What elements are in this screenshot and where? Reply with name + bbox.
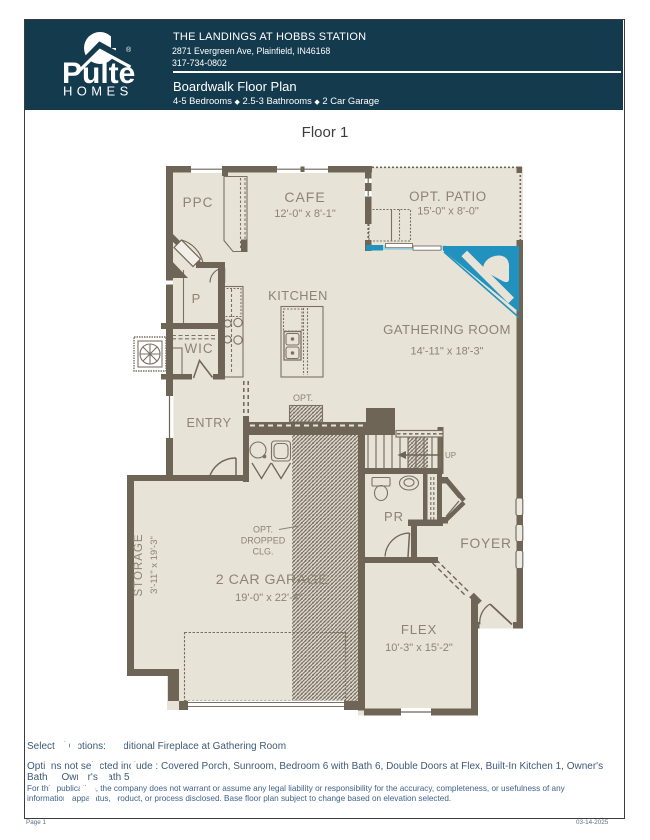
svg-text:KITCHEN: KITCHEN xyxy=(268,288,328,303)
svg-text:14'-11" x 18'-3": 14'-11" x 18'-3" xyxy=(411,346,484,358)
svg-text:2 CAR GARAGE: 2 CAR GARAGE xyxy=(216,572,328,588)
svg-text:OPT.: OPT. xyxy=(293,393,313,403)
svg-text:19'-0" x 22'-4": 19'-0" x 22'-4" xyxy=(235,592,303,604)
svg-text:CLG.: CLG. xyxy=(252,547,273,557)
svg-text:12'-0" x 8'-1": 12'-0" x 8'-1" xyxy=(274,208,336,220)
svg-text:OPT.: OPT. xyxy=(253,525,273,535)
svg-text:WIC: WIC xyxy=(184,341,213,356)
svg-text:10'-3" x 15'-2": 10'-3" x 15'-2" xyxy=(385,642,453,654)
svg-text:OPT. PATIO: OPT. PATIO xyxy=(409,189,487,204)
svg-text:15'-0" x 8'-0": 15'-0" x 8'-0" xyxy=(417,206,479,218)
svg-text:GATHERING ROOM: GATHERING ROOM xyxy=(383,322,511,337)
svg-text:STORAGE: STORAGE xyxy=(133,533,145,596)
svg-text:PPC: PPC xyxy=(183,195,214,210)
svg-text:DROPPED: DROPPED xyxy=(241,536,286,546)
svg-text:UP: UP xyxy=(445,451,456,460)
svg-text:CAFE: CAFE xyxy=(284,189,325,205)
svg-text:P: P xyxy=(192,291,201,306)
svg-text:ENTRY: ENTRY xyxy=(187,416,232,430)
svg-text:3'-11" x 19'-3": 3'-11" x 19'-3" xyxy=(149,536,160,594)
svg-text:PR: PR xyxy=(384,509,404,524)
svg-text:FLEX: FLEX xyxy=(401,622,437,637)
svg-text:FOYER: FOYER xyxy=(460,536,512,551)
